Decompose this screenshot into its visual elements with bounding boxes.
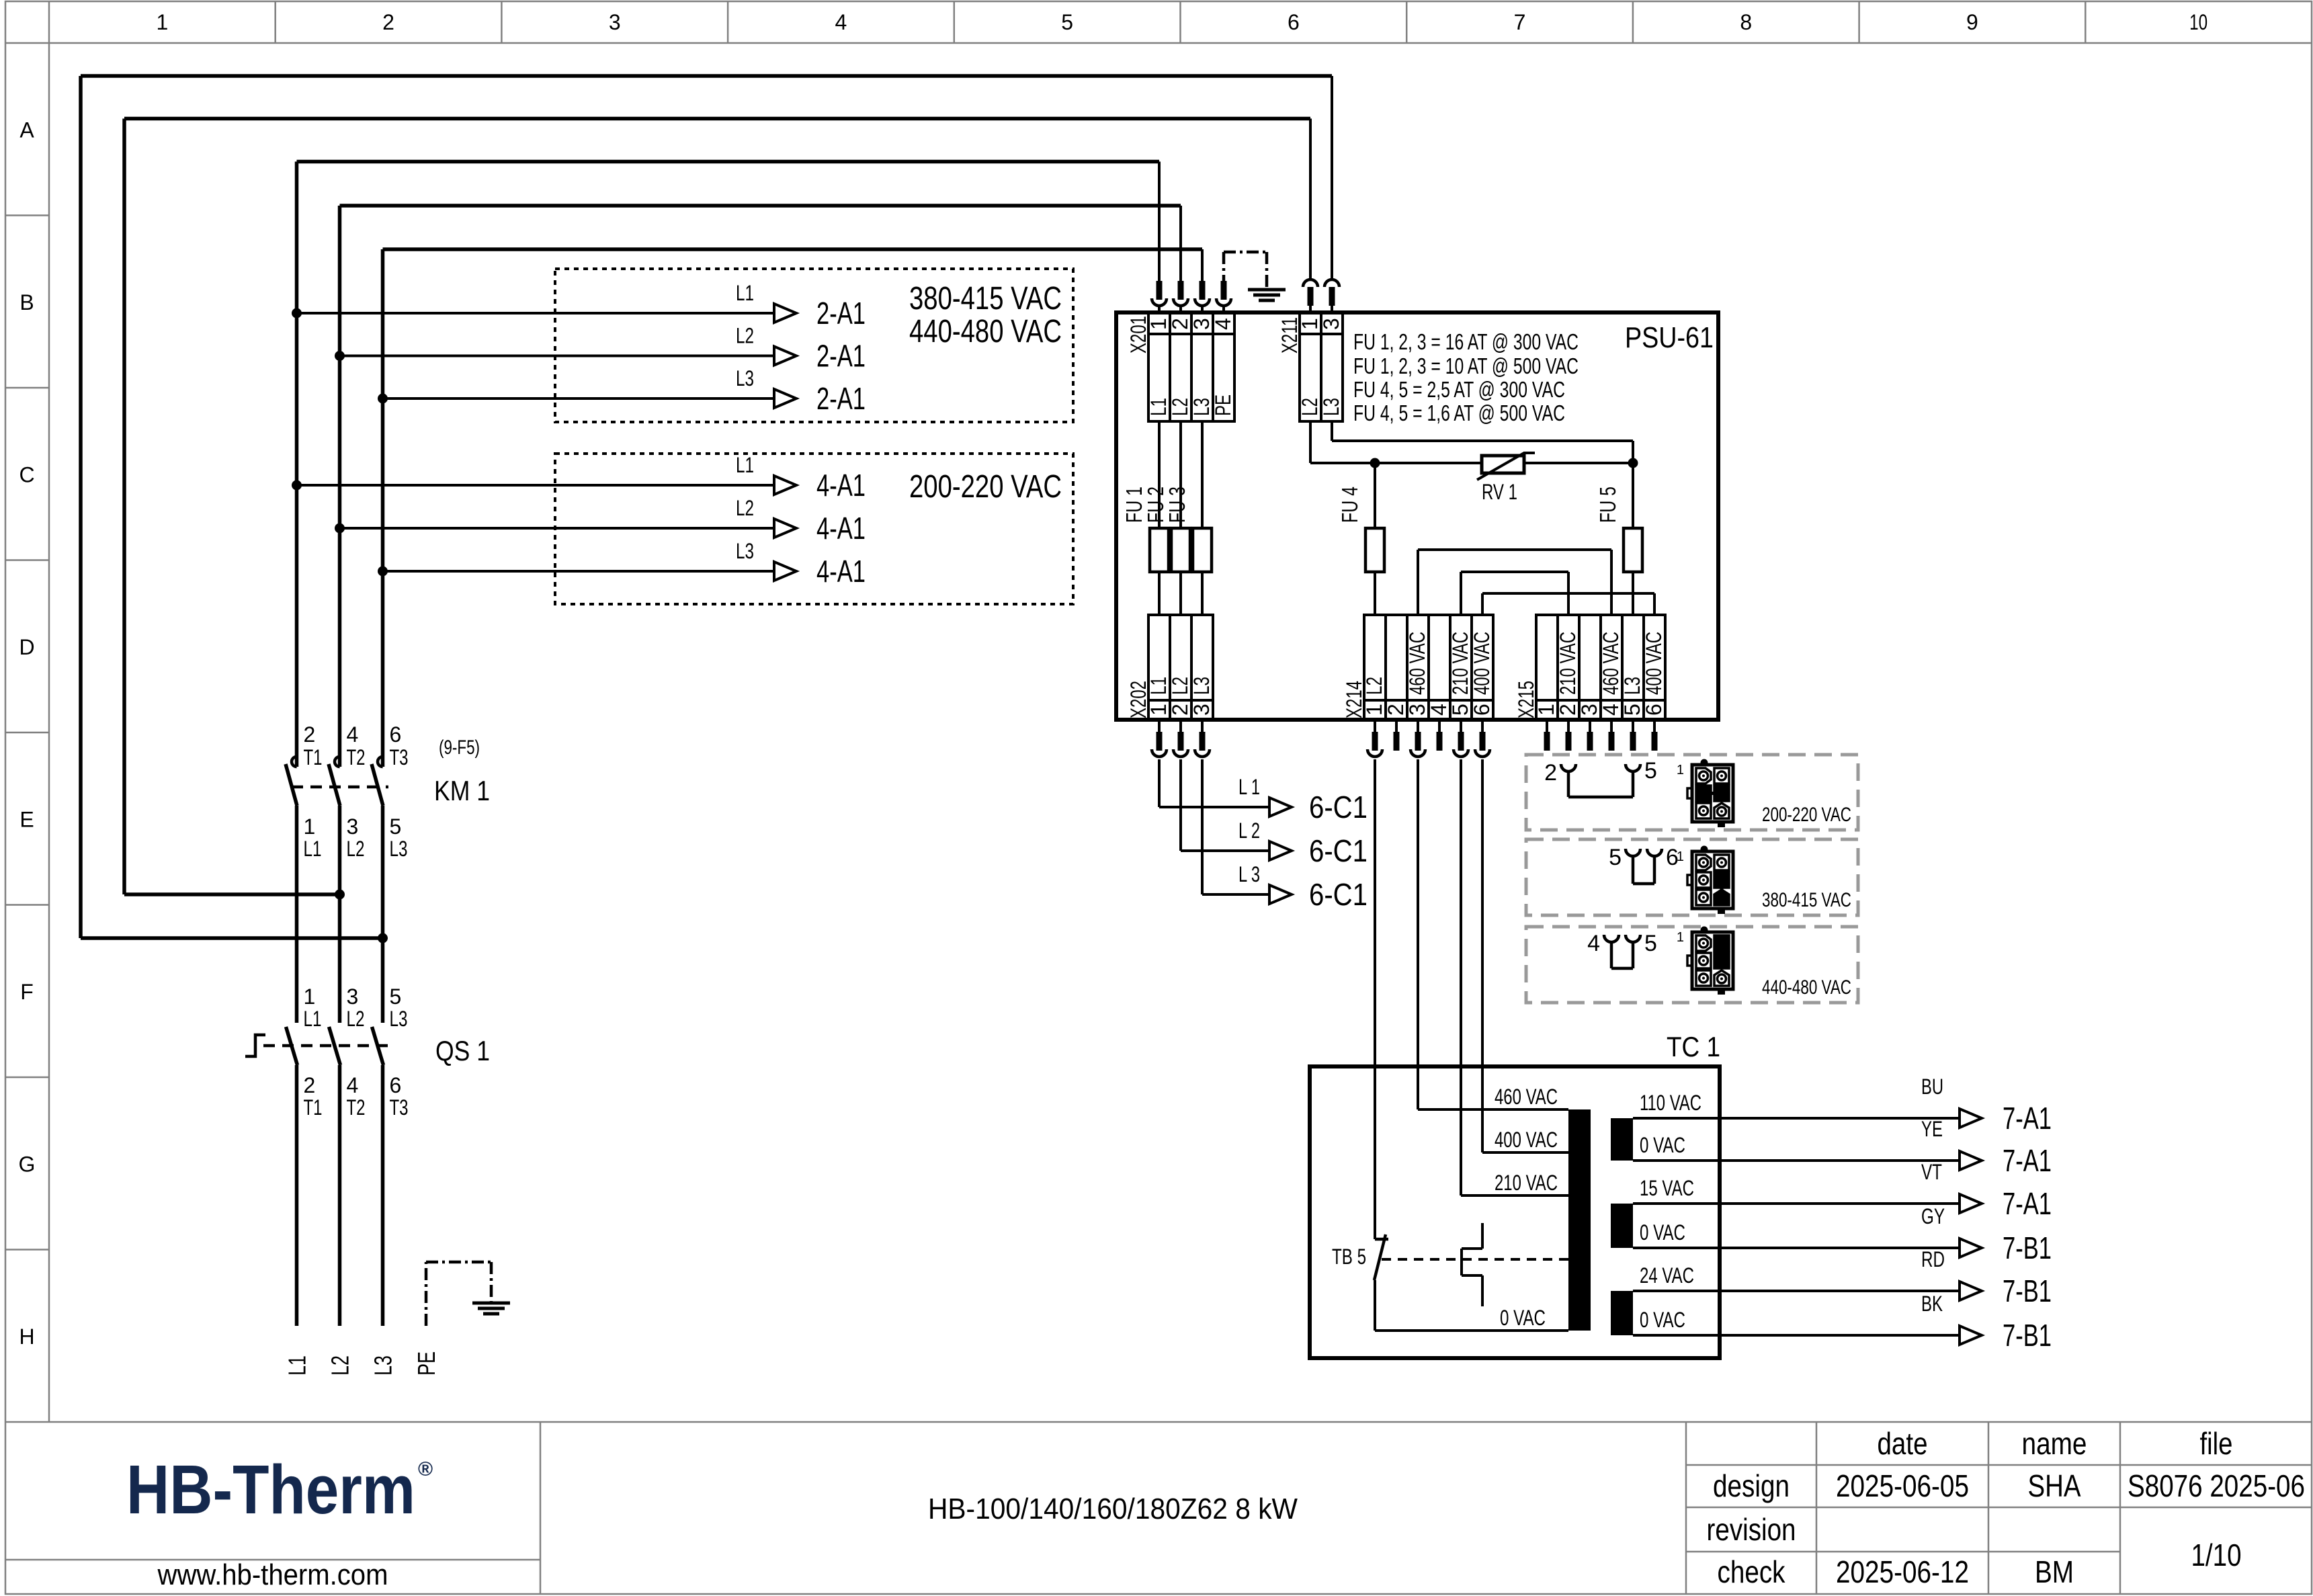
svg-text:7-B1: 7-B1: [2003, 1273, 2052, 1308]
svg-text:X211: X211: [1277, 317, 1302, 353]
svg-text:1: 1: [1677, 849, 1684, 864]
svg-text:440-480 VAC: 440-480 VAC: [909, 314, 1062, 349]
svg-text:S8076 2025-06: S8076 2025-06: [2128, 1468, 2305, 1503]
svg-text:X202: X202: [1126, 681, 1150, 718]
svg-text:C: C: [19, 462, 34, 487]
svg-text:440-480 VAC: 440-480 VAC: [1762, 976, 1851, 999]
svg-text:4: 4: [1211, 318, 1235, 330]
svg-text:PE: PE: [1211, 394, 1235, 416]
svg-text:3: 3: [1319, 318, 1343, 330]
svg-text:1: 1: [1677, 763, 1684, 778]
svg-text:TB 5: TB 5: [1332, 1245, 1366, 1269]
svg-text:2: 2: [1544, 760, 1557, 786]
svg-text:L2: L2: [1168, 398, 1192, 416]
svg-text:T3: T3: [390, 745, 409, 769]
svg-text:name: name: [2022, 1426, 2087, 1461]
svg-text:7-A1: 7-A1: [2003, 1143, 2052, 1178]
svg-text:L2: L2: [736, 496, 754, 520]
svg-text:210 VAC: 210 VAC: [1556, 632, 1580, 695]
svg-text:460 VAC: 460 VAC: [1405, 632, 1429, 695]
svg-text:1: 1: [156, 10, 168, 34]
svg-text:X201: X201: [1126, 316, 1150, 353]
svg-text:T2: T2: [347, 1095, 366, 1120]
svg-text:check: check: [1718, 1554, 1786, 1589]
svg-text:4: 4: [347, 722, 359, 747]
svg-text:L2: L2: [736, 324, 754, 348]
svg-text:8: 8: [1740, 10, 1752, 34]
svg-text:FU 1, 2, 3 = 10 AT @ 500 VAC: FU 1, 2, 3 = 10 AT @ 500 VAC: [1353, 353, 1579, 378]
svg-text:HB-100/140/160/180Z62 8 kW: HB-100/140/160/180Z62 8 kW: [928, 1493, 1298, 1525]
svg-text:BM: BM: [2035, 1554, 2074, 1589]
svg-text:TC 1: TC 1: [1667, 1031, 1720, 1062]
svg-text:revision: revision: [1707, 1512, 1796, 1547]
svg-text:L2: L2: [327, 1355, 354, 1376]
svg-text:VT: VT: [1921, 1160, 1942, 1184]
svg-text:PE: PE: [413, 1351, 440, 1376]
svg-text:L3: L3: [736, 539, 754, 563]
svg-text:6: 6: [390, 1073, 402, 1097]
svg-text:design: design: [1713, 1468, 1790, 1503]
svg-text:3: 3: [1577, 704, 1601, 716]
svg-text:A: A: [19, 118, 34, 142]
svg-text:L3: L3: [1189, 398, 1214, 416]
svg-text:5: 5: [1644, 758, 1657, 784]
svg-text:4: 4: [835, 10, 847, 34]
svg-text:1: 1: [1677, 930, 1684, 945]
svg-text:L1: L1: [736, 281, 754, 305]
svg-text:9: 9: [1966, 10, 1978, 34]
svg-text:QS 1: QS 1: [435, 1035, 490, 1066]
svg-text:L1: L1: [736, 453, 754, 477]
svg-text:5: 5: [1061, 10, 1073, 34]
svg-text:4-A1: 4-A1: [816, 554, 866, 589]
svg-text:4-A1: 4-A1: [816, 511, 866, 546]
svg-text:7-A1: 7-A1: [2003, 1186, 2052, 1221]
svg-text:0 VAC: 0 VAC: [1500, 1306, 1546, 1330]
svg-text:E: E: [19, 807, 34, 831]
svg-text:2: 2: [304, 722, 316, 747]
svg-text:GY: GY: [1921, 1204, 1945, 1228]
svg-text:FU 5: FU 5: [1595, 487, 1620, 523]
svg-text:15 VAC: 15 VAC: [1640, 1176, 1694, 1200]
svg-text:3: 3: [1189, 318, 1214, 330]
svg-text:L3: L3: [370, 1355, 397, 1376]
svg-text:6: 6: [1288, 10, 1300, 34]
svg-text:5: 5: [1448, 704, 1472, 716]
svg-text:HB-Therm: HB-Therm: [126, 1451, 415, 1528]
svg-text:BK: BK: [1921, 1292, 1943, 1316]
svg-text:380-415 VAC: 380-415 VAC: [1762, 889, 1851, 911]
svg-text:®: ®: [418, 1458, 433, 1480]
svg-text:1: 1: [304, 814, 316, 839]
svg-text:L2: L2: [1168, 677, 1192, 695]
svg-text:210 VAC: 210 VAC: [1448, 632, 1472, 695]
svg-text:2025-06-12: 2025-06-12: [1836, 1554, 1969, 1589]
svg-text:400 VAC: 400 VAC: [1642, 632, 1666, 695]
svg-text:6: 6: [1642, 704, 1666, 716]
svg-text:2: 2: [1384, 704, 1408, 716]
svg-text:L3: L3: [736, 366, 754, 390]
svg-text:L3: L3: [390, 837, 408, 861]
svg-text:7-A1: 7-A1: [2003, 1101, 2052, 1136]
svg-text:D: D: [19, 635, 34, 659]
svg-text:24 VAC: 24 VAC: [1640, 1263, 1694, 1288]
svg-text:10: 10: [2189, 10, 2207, 34]
svg-text:T2: T2: [347, 745, 366, 769]
svg-text:T1: T1: [304, 1095, 323, 1120]
svg-text:FU 4: FU 4: [1337, 487, 1362, 523]
svg-text:www.hb-therm.com: www.hb-therm.com: [157, 1558, 388, 1591]
svg-text:G: G: [19, 1152, 36, 1176]
svg-text:2: 2: [382, 10, 394, 34]
svg-text:RD: RD: [1921, 1247, 1945, 1271]
svg-text:200-220 VAC: 200-220 VAC: [909, 469, 1062, 505]
svg-text:FU 4, 5 = 1,6 AT @ 500 VAC: FU 4, 5 = 1,6 AT @ 500 VAC: [1353, 401, 1565, 425]
svg-text:L2: L2: [1298, 398, 1322, 416]
svg-text:7-B1: 7-B1: [2003, 1230, 2052, 1265]
svg-text:2: 2: [1168, 704, 1192, 716]
svg-text:1: 1: [304, 984, 316, 1009]
svg-text:X215: X215: [1514, 681, 1538, 718]
svg-text:380-415 VAC: 380-415 VAC: [909, 281, 1062, 317]
svg-text:FU 4, 5 = 2,5 AT @ 300 VAC: FU 4, 5 = 2,5 AT @ 300 VAC: [1353, 377, 1565, 402]
svg-text:4: 4: [1587, 931, 1600, 956]
svg-text:L3: L3: [390, 1007, 408, 1031]
svg-text:2-A1: 2-A1: [816, 296, 866, 331]
svg-text:2: 2: [304, 1073, 316, 1097]
svg-text:YE: YE: [1921, 1117, 1943, 1141]
svg-text:7: 7: [1514, 10, 1526, 34]
svg-text:210 VAC: 210 VAC: [1495, 1171, 1558, 1195]
svg-text:0 VAC: 0 VAC: [1640, 1133, 1685, 1157]
svg-text:X214: X214: [1342, 681, 1366, 718]
svg-text:5: 5: [1644, 931, 1657, 956]
svg-text:L 1: L 1: [1238, 775, 1260, 799]
svg-text:L 2: L 2: [1238, 818, 1260, 843]
svg-text:FU 3: FU 3: [1165, 487, 1189, 523]
svg-text:T1: T1: [304, 745, 323, 769]
svg-text:2-A1: 2-A1: [816, 339, 866, 374]
svg-text:460 VAC: 460 VAC: [1495, 1085, 1558, 1109]
svg-text:400 VAC: 400 VAC: [1495, 1128, 1558, 1152]
svg-text:6-C1: 6-C1: [1309, 790, 1368, 825]
svg-text:4-A1: 4-A1: [816, 468, 866, 503]
svg-text:2025-06-05: 2025-06-05: [1836, 1468, 1969, 1503]
svg-text:3: 3: [347, 814, 359, 839]
svg-text:L1: L1: [1146, 398, 1171, 416]
svg-text:KM 1: KM 1: [434, 775, 490, 806]
svg-text:3: 3: [1189, 704, 1214, 716]
svg-text:L2: L2: [347, 1007, 365, 1031]
svg-text:200-220 VAC: 200-220 VAC: [1762, 804, 1851, 826]
svg-text:5: 5: [1620, 704, 1644, 716]
svg-text:file: file: [2200, 1426, 2233, 1461]
svg-text:RV 1: RV 1: [1482, 480, 1517, 504]
svg-text:1/10: 1/10: [2191, 1538, 2242, 1572]
svg-text:3: 3: [347, 984, 359, 1009]
svg-text:PSU-61: PSU-61: [1625, 321, 1714, 354]
svg-text:2-A1: 2-A1: [816, 381, 866, 416]
svg-text:FU 1, 2, 3 = 16 AT @ 300 VAC: FU 1, 2, 3 = 16 AT @ 300 VAC: [1353, 329, 1579, 354]
svg-text:0 VAC: 0 VAC: [1640, 1308, 1685, 1332]
svg-text:L1: L1: [284, 1355, 311, 1376]
svg-text:L 3: L 3: [1238, 862, 1260, 886]
svg-text:5: 5: [390, 984, 402, 1009]
svg-text:L1: L1: [304, 837, 322, 861]
svg-text:F: F: [20, 980, 34, 1004]
svg-text:B: B: [19, 290, 34, 314]
svg-text:L1: L1: [304, 1007, 322, 1031]
svg-text:4: 4: [1599, 704, 1623, 716]
svg-text:6-C1: 6-C1: [1309, 833, 1368, 868]
svg-text:400 VAC: 400 VAC: [1470, 632, 1494, 695]
svg-text:3: 3: [1405, 704, 1429, 716]
svg-text:2: 2: [1556, 704, 1580, 716]
svg-text:BU: BU: [1921, 1075, 1943, 1099]
svg-text:SHA: SHA: [2028, 1468, 2081, 1503]
svg-text:H: H: [19, 1325, 34, 1349]
svg-text:5: 5: [390, 814, 402, 839]
svg-text:L3: L3: [1319, 398, 1343, 416]
svg-text:L2: L2: [347, 837, 365, 861]
svg-text:110 VAC: 110 VAC: [1640, 1091, 1701, 1115]
svg-text:3: 3: [609, 10, 621, 34]
svg-text:0 VAC: 0 VAC: [1640, 1220, 1685, 1245]
svg-text:4: 4: [347, 1073, 359, 1097]
svg-text:4: 4: [1427, 704, 1451, 716]
svg-text:6-C1: 6-C1: [1309, 877, 1368, 912]
svg-text:date: date: [1878, 1426, 1928, 1461]
svg-text:7-B1: 7-B1: [2003, 1318, 2052, 1353]
svg-text:5: 5: [1609, 845, 1622, 870]
svg-text:460 VAC: 460 VAC: [1599, 632, 1623, 695]
svg-text:T3: T3: [390, 1095, 409, 1120]
svg-text:2: 2: [1168, 318, 1192, 330]
svg-text:L3: L3: [1189, 677, 1214, 695]
svg-text:(9-F5): (9-F5): [439, 737, 480, 759]
svg-text:6: 6: [390, 722, 402, 747]
svg-text:L3: L3: [1620, 677, 1644, 695]
svg-text:6: 6: [1470, 704, 1494, 716]
